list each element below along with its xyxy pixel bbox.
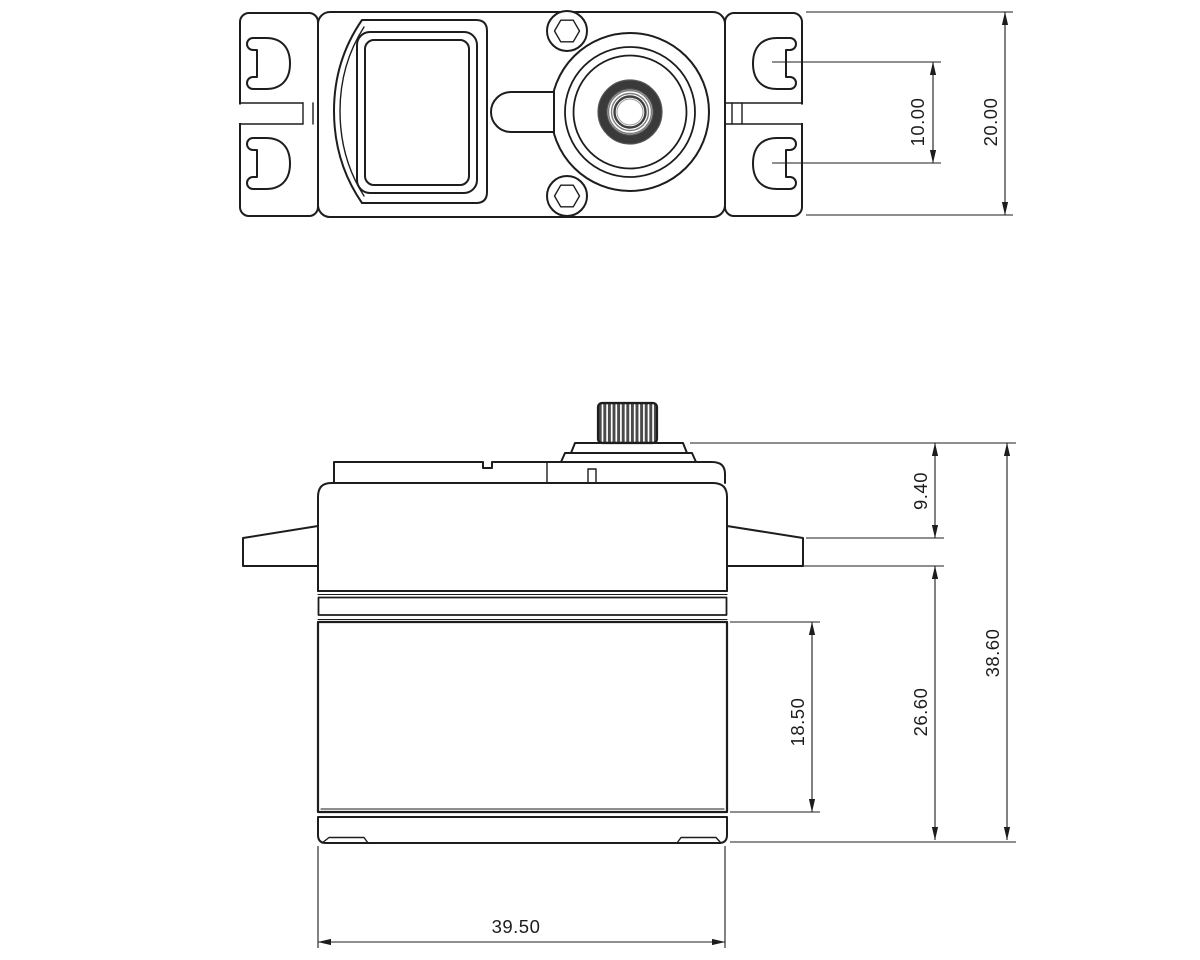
top-cap-outline xyxy=(334,462,725,483)
housing-step-circle xyxy=(565,47,695,177)
bottom-screw-boss xyxy=(547,176,587,216)
side-ear-tab xyxy=(491,92,554,132)
right-flange xyxy=(727,526,803,566)
top-view xyxy=(234,11,806,217)
dim-lower-body-label: 18.50 xyxy=(787,698,808,747)
right-center-channel xyxy=(725,103,802,124)
output-spline-side xyxy=(598,403,657,443)
left-flange xyxy=(243,526,318,566)
right-top-mount-slot xyxy=(753,38,796,89)
dim-overall-height-label: 38.60 xyxy=(982,629,1003,678)
spline-bore xyxy=(615,97,646,128)
dim-slot-pitch-label: 10.00 xyxy=(907,98,928,147)
spline-base-step-2 xyxy=(561,453,696,462)
dim-tab-span-label: 20.00 xyxy=(980,98,1001,147)
spline-base-step-1 xyxy=(571,443,687,453)
label-plate-outer xyxy=(357,32,477,193)
left-bottom-mount-slot xyxy=(247,138,290,189)
left-center-channel xyxy=(240,103,313,124)
drawing-canvas: 10.00 20.00 9.40 26.60 38.60 18.50 xyxy=(0,0,1200,960)
backplate-inner-arc xyxy=(340,27,364,196)
dim-flange-to-bottom: 26.60 xyxy=(910,566,935,840)
upper-case-outline xyxy=(318,483,727,591)
dim-lower-body: 18.50 xyxy=(787,622,812,812)
top-cap-slot xyxy=(588,469,596,483)
gear-housing-circle xyxy=(551,33,709,191)
dim-overall-height: 38.60 xyxy=(982,443,1007,840)
bottom-cap xyxy=(318,817,727,843)
lower-case xyxy=(318,622,727,812)
left-top-mount-slot xyxy=(247,38,290,89)
side-view xyxy=(243,403,803,843)
housing-step-circle-2 xyxy=(574,56,687,169)
spline-bore-inner xyxy=(617,99,643,125)
top-screw-boss xyxy=(547,11,587,51)
middle-band xyxy=(319,598,727,616)
dim-body-width-label: 39.50 xyxy=(492,916,541,937)
label-plate-inner xyxy=(365,40,469,185)
dim-top-to-flange: 9.40 xyxy=(910,443,935,538)
spline-knurl-ring xyxy=(603,85,658,140)
dim-top-to-flange-label: 9.40 xyxy=(910,472,931,510)
dim-tab-span: 20.00 xyxy=(980,12,1005,215)
dimensions: 10.00 20.00 9.40 26.60 38.60 18.50 xyxy=(318,12,1016,948)
dim-flange-to-bottom-label: 26.60 xyxy=(910,688,931,737)
servo-dimension-drawing: 10.00 20.00 9.40 26.60 38.60 18.50 xyxy=(0,0,1200,960)
dim-slot-pitch: 10.00 xyxy=(907,62,933,163)
dim-body-width: 39.50 xyxy=(318,916,725,942)
